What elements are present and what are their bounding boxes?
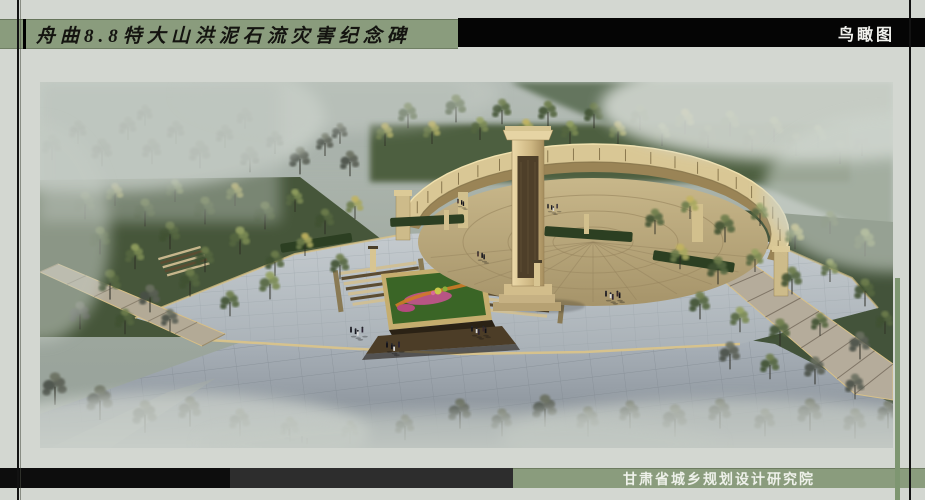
institute-name: 甘肃省城乡规划设计研究院	[623, 469, 815, 489]
top-banner-band: 舟曲8.8特大山洪泥石流灾害纪念碑 鸟瞰图	[0, 19, 925, 49]
right-rule	[909, 0, 911, 500]
right-green-accent-bar	[895, 278, 900, 500]
footer-bar: 甘肃省城乡规划设计研究院	[0, 468, 925, 488]
title-banner: 舟曲8.8特大山洪泥石流灾害纪念碑	[0, 19, 458, 49]
inner-circle-paving	[418, 178, 768, 306]
presentation-board: 舟曲8.8特大山洪泥石流灾害纪念碑 鸟瞰图	[0, 0, 925, 500]
view-label: 鸟瞰图	[838, 21, 895, 45]
left-banner-accent-bar	[23, 19, 26, 49]
left-rule-thin	[20, 0, 21, 500]
memorial-rendering	[40, 82, 893, 448]
institute-banner: 甘肃省城乡规划设计研究院	[513, 468, 925, 488]
footer-bar-gray-segment	[230, 468, 513, 488]
view-label-banner: 鸟瞰图	[458, 18, 925, 47]
footer-bar-black-segment	[0, 468, 230, 488]
board-title: 舟曲8.8特大山洪泥石流灾害纪念碑	[0, 21, 411, 48]
left-rule-thick	[17, 0, 19, 500]
aerial-view-svg	[40, 82, 893, 448]
